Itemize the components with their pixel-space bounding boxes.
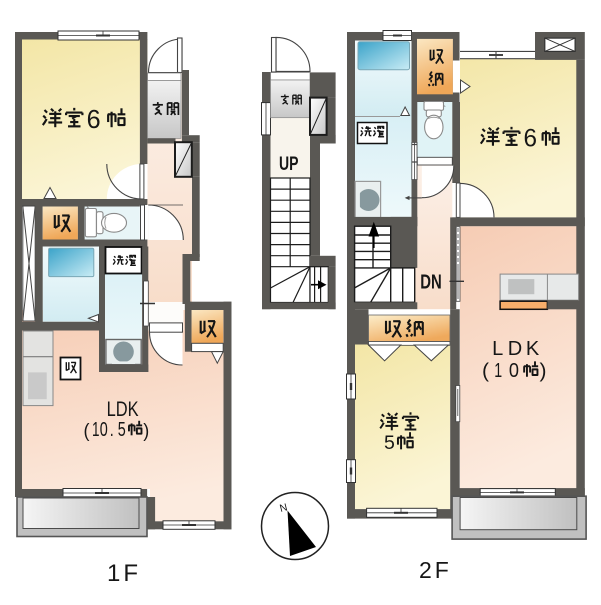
svg-text:6: 6 [87,104,101,134]
svg-text:2F: 2F [419,557,452,583]
svg-text:1: 1 [494,360,502,382]
svg-text:DN: DN [420,272,442,294]
svg-text:K: K [526,338,540,360]
svg-text:5: 5 [118,419,126,441]
svg-text:UP: UP [279,154,299,175]
svg-text:): ) [540,361,547,383]
svg-text:): ) [143,421,149,442]
svg-text:5: 5 [384,432,395,454]
svg-text:(: ( [84,421,91,442]
svg-text:(: ( [482,361,489,383]
svg-text:L: L [492,338,503,360]
svg-text:.: . [110,419,114,441]
svg-text:0: 0 [509,360,519,382]
svg-text:0: 0 [100,419,108,441]
svg-text:LDK: LDK [107,397,140,421]
svg-text:D: D [508,338,522,360]
svg-text:1F: 1F [107,560,141,587]
svg-text:6: 6 [524,125,538,153]
svg-text:1: 1 [92,419,100,441]
